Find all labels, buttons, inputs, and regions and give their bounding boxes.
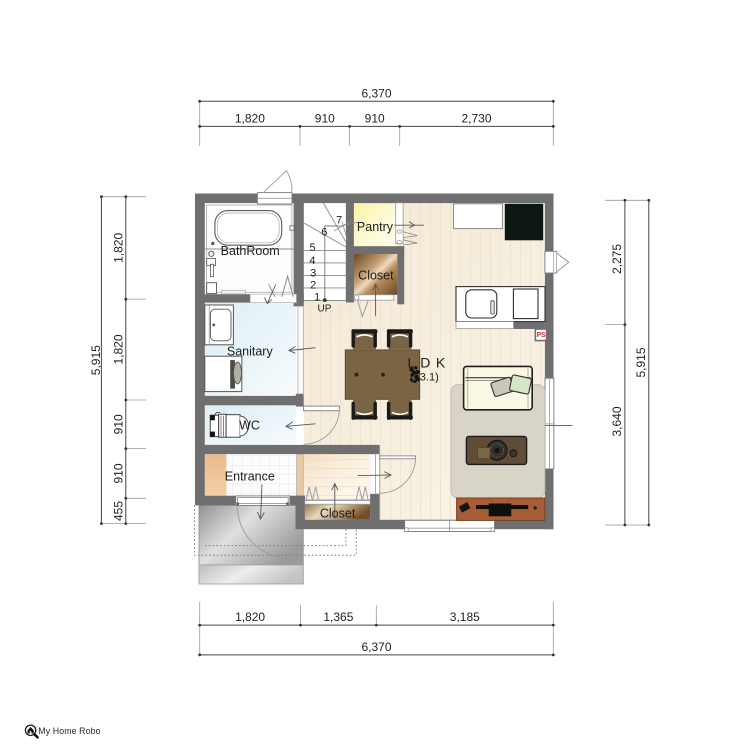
svg-text:6,370: 6,370 <box>361 86 391 100</box>
svg-text:1,820: 1,820 <box>111 334 125 364</box>
svg-text:1: 1 <box>314 292 320 304</box>
svg-text:Closet: Closet <box>358 269 394 283</box>
svg-text:7: 7 <box>336 214 342 226</box>
svg-text:3,640: 3,640 <box>610 406 624 436</box>
svg-text:910: 910 <box>111 463 125 483</box>
svg-text:Pantry: Pantry <box>357 220 394 234</box>
svg-text:Sanitary: Sanitary <box>227 345 274 359</box>
svg-text:2,275: 2,275 <box>610 244 624 274</box>
svg-text:4: 4 <box>309 255 315 267</box>
svg-text:1,820: 1,820 <box>111 233 125 263</box>
svg-text:3: 3 <box>310 268 316 280</box>
svg-text:910: 910 <box>365 111 385 125</box>
svg-text:WC: WC <box>239 418 260 432</box>
svg-text:1,820: 1,820 <box>235 610 265 624</box>
svg-text:UP: UP <box>318 304 332 315</box>
svg-text:L D K: L D K <box>408 355 447 371</box>
svg-text:910: 910 <box>315 111 335 125</box>
svg-text:5,915: 5,915 <box>89 345 103 375</box>
svg-text:2: 2 <box>310 279 316 291</box>
svg-text:455: 455 <box>111 501 125 521</box>
svg-text:Entrance: Entrance <box>225 469 275 483</box>
svg-text:BathRoom: BathRoom <box>221 244 280 258</box>
svg-text:2,730: 2,730 <box>461 111 491 125</box>
svg-text:Closet: Closet <box>320 507 356 521</box>
svg-text:6,370: 6,370 <box>361 640 391 654</box>
svg-text:PS: PS <box>537 332 546 339</box>
svg-text:5,915: 5,915 <box>634 347 648 377</box>
svg-text:3,185: 3,185 <box>450 610 480 624</box>
svg-text:910: 910 <box>111 414 125 434</box>
svg-text:1,365: 1,365 <box>323 610 353 624</box>
svg-text:5: 5 <box>309 242 315 254</box>
svg-text:6: 6 <box>321 226 327 238</box>
svg-text:My Home Robo: My Home Robo <box>38 726 100 736</box>
svg-text:1,820: 1,820 <box>235 111 265 125</box>
